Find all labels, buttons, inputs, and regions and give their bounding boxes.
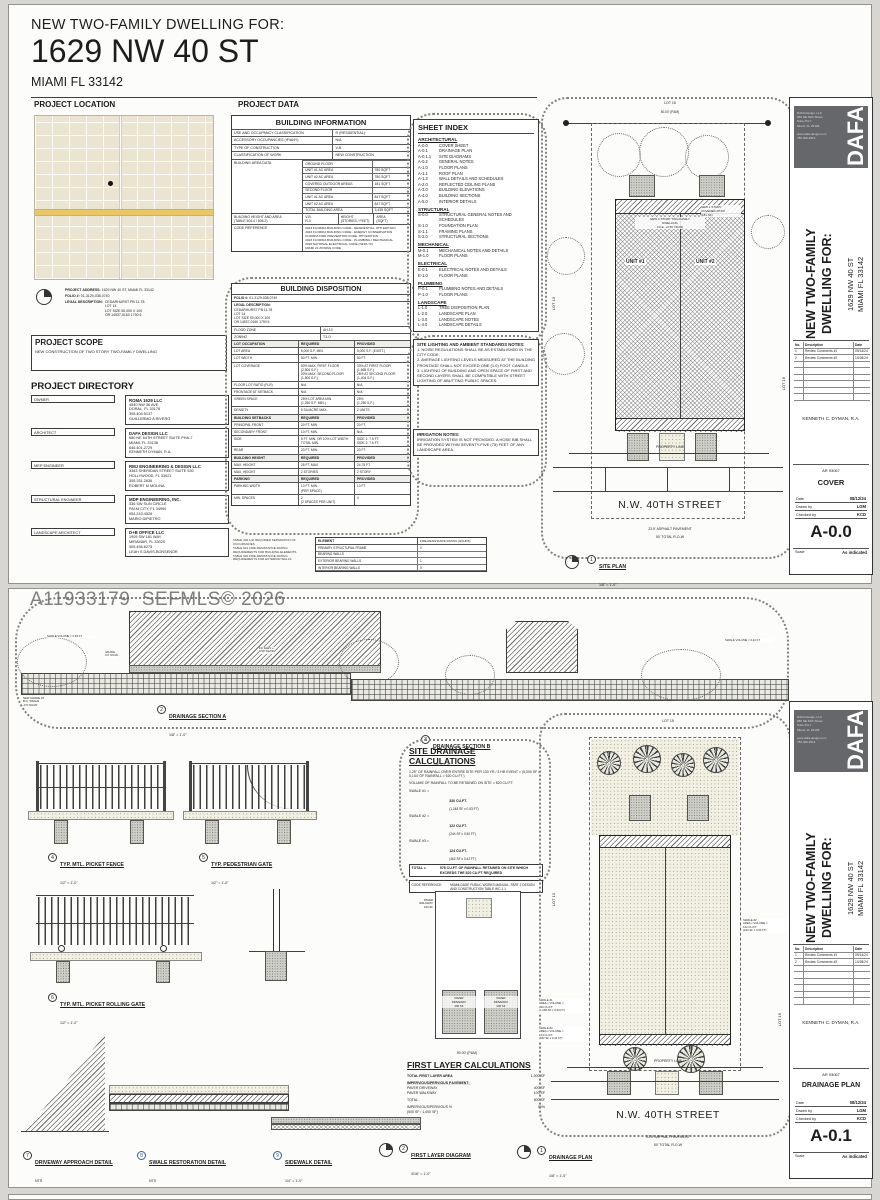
detail-number-icon: 8: [137, 1151, 146, 1160]
unit2-label: UNIT #2: [695, 259, 716, 265]
sheet-name: SITE DIAGRAMS: [439, 154, 534, 159]
address-value: 1629 NW 40 ST, MIAMI FL 33142: [102, 288, 154, 292]
diagram-dimension: 50.00' (P&M): [407, 1051, 527, 1055]
area-name: COVERED OUTDOOR AREAS: [303, 181, 371, 187]
site-plan: LOT 15 50.00' (P&M) UNIT #1 UNIT #2 NEW …: [539, 97, 801, 577]
sheet-name: FRAMING PLANS: [439, 229, 534, 234]
directory-info: DAFA DESIGN LLC 680 NE 64TH STREET SUITE…: [125, 428, 229, 458]
detail-scale: 1/2" = 1'-0": [211, 881, 229, 885]
area-name: SECOND FLOOR: [303, 188, 371, 194]
swale1-callout: SWALE #1 AREA x VOLUME = 330 CU.FT. (1,2…: [539, 999, 587, 1013]
fence-detail-label: 4 TYP. MTL. PICKET FENCE1/2" = 1'-0": [48, 853, 124, 889]
section-callout: NEW GRADE AT B.O. SWALE -0.5' NGVD: [23, 697, 63, 707]
map-road-highway: [35, 209, 213, 216]
sheet-number: S-1.1: [418, 229, 439, 234]
map-road-vertical: [119, 116, 122, 279]
sheet-index: SHEET INDEX ARCHITECTURAL A-0.0COVER SHE…: [413, 119, 539, 332]
area-name: GROUND FLOOR: [303, 161, 371, 167]
table-row: SIDE5 FT. MIN. OR 10% LOT WIDTH TOTAL MI…: [232, 435, 410, 446]
swale3-callout: SWALE #3 AREA x VOLUME = 124 CU.FT. (462…: [539, 1027, 587, 1041]
cell-b: 20 FT. MIN.: [298, 447, 354, 453]
sidewalk-line: [553, 491, 783, 492]
sheet-number: A-2.0: [418, 182, 439, 187]
bi-value: R (RESIDENTIAL): [333, 130, 410, 136]
paver-pad: [687, 795, 709, 821]
fire-element: PRIMARY STRUCTURAL FRAME: [316, 545, 418, 551]
rolling-gate-detail: 6 TYP. MTL. PICKET ROLLING GATE1/2" = 1'…: [36, 889, 226, 1013]
sheet-number: M-1.0: [418, 253, 439, 258]
table-row: CLASSIFICATION OF WORK NEW CONSTRUCTION: [232, 151, 410, 158]
code-label: CODE REFERENCE:: [412, 883, 451, 891]
cell-a: MAX. HEIGHT: [232, 462, 298, 468]
sheet-info-rows: Date08/12/24 Drawn byLGM Checked byKCD: [795, 1099, 867, 1123]
sheet-name: WALL DETAILS AND SCHEDULES: [439, 176, 534, 181]
checked-value: KCD: [857, 1116, 866, 1121]
directory-firm-details: 336 SW SUN CIRCLE PALM CITY, FL 34990 95…: [129, 502, 225, 522]
area-sqft: 780 SQFT: [372, 168, 410, 174]
index-arch-label: ARCHITECTURAL: [418, 137, 534, 142]
total-value: 576 CU.FT. OF RAINFALL RETAINED ON SITE …: [440, 866, 541, 875]
code-value: MIAMI-DADE PUBLIC WORKS MANUAL, PART 2 D…: [450, 883, 540, 891]
north-arrow-icon: [379, 1143, 393, 1157]
lighting-body: 1. NOISE REGULATIONS SHALL BE AS ESTABLI…: [417, 347, 535, 383]
document-canvas: NEW TWO-FAMILY DWELLING FOR: 1629 NW 40 …: [0, 0, 880, 1200]
driveway-edge: [729, 467, 730, 491]
paver-pad: [629, 175, 655, 197]
section-project-location: PROJECT LOCATION: [34, 100, 115, 109]
scale-row: Scale As indicated: [795, 1154, 867, 1159]
sheet-number: M-0.1: [418, 248, 439, 253]
hdr-b: REQUIRED: [298, 341, 354, 347]
property-line-label: PROPERTY LINE: [537, 1059, 799, 1063]
table-row: UNIT #2 AC AREA 847 SQFT: [303, 200, 410, 207]
table-row: MAX. HEIGHT2 STORIES2 STORY: [232, 468, 410, 475]
tree-symbol: [639, 127, 689, 177]
detail-name: DRIVEWAY APPROACH DETAIL: [35, 1160, 113, 1166]
lot-left-label: LOT 13: [551, 297, 556, 310]
fence-detail: 4 TYP. MTL. PICKET FENCE1/2" = 1'-0": [36, 759, 186, 869]
table-row: FRONTAGE AT SETBACKN/AN/A: [232, 388, 410, 395]
sheet-name: STRUCTURAL SECTIONS: [439, 234, 534, 239]
cell-a: FRONTAGE AT SETBACK: [232, 389, 298, 395]
cell-b: 50% MAX. FIRST FLOOR (2,500 S.F.) 30% MA…: [298, 363, 354, 381]
list-item: M-0.1MECHANICAL NOTES AND DETAILS: [418, 248, 534, 253]
sheet-number: A-0.0: [418, 143, 439, 148]
bi-value: V-B: [333, 145, 410, 151]
swale-label: SWALE #1 =: [409, 789, 449, 811]
setbacks-rows: PRINCIPAL FRONT20 FT. MIN.20 FT.SECONDAR…: [232, 421, 410, 454]
swale-calc-rows: SWALE #1 = 330 CU.FT.(1,248 SF x 0.53 FT…: [409, 789, 543, 861]
base-line: [21, 1131, 109, 1132]
disp-legal-label: LEGAL DESCRIPTION:: [234, 303, 271, 307]
cell-c: N/A: [354, 382, 410, 388]
rg-pickets: [38, 897, 190, 945]
driveway-approach-label: 7 DRIVEWAY APPROACH DETAILNTS: [23, 1151, 113, 1187]
detail-name: SWALE RESTORATION DETAIL: [149, 1160, 226, 1166]
index-plu-list: P-0.1PLUMBING NOTES AND DETAILSP-1.0FLOO…: [418, 286, 534, 297]
cell-b: 20 FT. MIN.: [298, 422, 354, 428]
directory-firm-details: 1905 SW 181 WAY MIRAMAR, FL 33029 305.45…: [129, 535, 225, 555]
fire-rows: PRIMARY STRUCTURAL FRAME 0 BEARING WALLS…: [316, 545, 486, 571]
table-row: SWALE #3 = 124 CU.FT.(462 SF x 0.42 FT): [409, 839, 543, 861]
footing: [56, 961, 70, 983]
swale-line: [553, 467, 783, 468]
setbacks-header: BUILDING SETBACKSREQUIREDPROVIDED: [232, 414, 410, 421]
detail-scale: 1/8" = 1'-0": [169, 733, 187, 737]
cell-c: N/A: [354, 389, 410, 395]
north-arrow-icon: [517, 1145, 531, 1159]
directory-firm-details: 680 NE 64TH STREET SUITE PHA-7 MIAMI, FL…: [129, 436, 225, 456]
north-arrow-icon: [36, 289, 52, 305]
sheet-name: MECHANICAL NOTES AND DETAILS: [439, 248, 534, 253]
sheet-name: BUILDING SECTIONS: [439, 193, 534, 198]
fl-label: PAVER DRIVEWAY: [407, 1086, 438, 1090]
lot-occupation-rows: LOT AREA5,000 S.F. MIN.5,000 S.F. (EXIST…: [232, 347, 410, 413]
cell-c: 5,000 S.F. (EXIST.): [354, 348, 410, 354]
list-item: S-1.0FOUNDATION PLAN: [418, 223, 534, 228]
table-row: SWALE #1 = 330 CU.FT.(1,248 SF x 0.53 FT…: [409, 789, 543, 811]
cell-b: 2 (2 SPACES PER UNIT): [298, 495, 354, 505]
rev-date: 10/28/24: [853, 355, 870, 361]
area-rows: GROUND FLOOR UNIT #1 AC AREA 780 SQFT UN…: [303, 160, 410, 213]
section-ground: [351, 679, 789, 701]
approach-wedge: [25, 1035, 105, 1131]
height-label: BUILDING HEIGHT AND AREA (TABLE 504.4 / …: [232, 214, 303, 224]
porch-hatch: [600, 836, 730, 848]
calc-total-row: TOTAL = 576 CU.FT. OF RAINFALL RETAINED …: [409, 864, 543, 878]
drainage-plan: LOT 15 SWALE #2 AREA x VOLUME = 122 CU.F…: [537, 713, 799, 1157]
sheet-title: COVER: [790, 478, 872, 487]
cell-c: 20 FT.: [354, 422, 410, 428]
detail-name: TYP. PEDESTRIAN GATE: [211, 862, 272, 868]
tree-symbol: [641, 649, 721, 701]
table-row: GREEN SPACE25% LOT AREA MIN. (1,250 S.F.…: [232, 395, 410, 406]
legal-label: LEGAL DESCRIPTION:: [65, 300, 103, 318]
building-footprint: [615, 199, 745, 431]
tree-symbol: [671, 753, 695, 777]
area-sqft: 847 SQFT: [372, 194, 410, 200]
list-item: S-2.0STRUCTURAL SECTIONS: [418, 234, 534, 239]
tb-divider: [793, 548, 869, 549]
list-item: L-2.0LANDSCAPE PLAN: [418, 311, 534, 316]
grade-strip: [28, 811, 174, 820]
fire-resistance-table: ELEMENT FIRE-RESISTANCE RATING (HOURS) P…: [315, 537, 487, 572]
street-label: N.W. 40TH STREET: [539, 499, 801, 511]
firm-info: DAFA Design, LLC 680 NE 64th Street Suit…: [797, 715, 837, 744]
swale-volume: 330 CU.FT.: [449, 799, 467, 803]
first-layer-calculations: FIRST LAYER CALCULATIONS TOTAL FIRST LAY…: [407, 1061, 545, 1114]
swale-label: SWALE #2 =: [409, 814, 449, 836]
lot-right-label: LOT 16: [781, 377, 786, 390]
index-plu-label: PLUMBING: [418, 281, 534, 286]
sheet-name: FLOOR PLANS: [439, 165, 534, 170]
rev-no: 2: [794, 355, 803, 361]
bi-label: USE AND OCCUPANCY CLASSIFICATION: [232, 130, 333, 136]
sheet-number: P-1.0: [418, 292, 439, 297]
swale-sub: (244 SF x 0.50 FT): [449, 832, 543, 836]
sheet-next-sliver: [8, 1194, 872, 1200]
fire-notes: TABLE 302.1(1) REQUIRED SEPARATION OF OC…: [233, 539, 309, 562]
drainage-plan-label: 1 DRAINAGE PLAN1/8" = 1'-0": [537, 1146, 592, 1182]
total-label: TOTAL =: [412, 866, 440, 875]
zoning-value: T3-O: [321, 334, 410, 340]
lot-top-label: LOT 15: [539, 101, 801, 105]
cell-a: MIN. SPACES: [232, 495, 298, 505]
cell-b: N/A: [298, 382, 354, 388]
area-sqft: 3,435 SQFT: [372, 208, 410, 214]
firm-logo-box: DAFA Design, LLC 680 NE 64th Street Suit…: [794, 710, 868, 772]
building-note: NEW 2 STORY TWO-FAMILY DWELLING F.F.E. +…: [635, 217, 705, 229]
rev-no-col: No.: [794, 342, 803, 348]
table-row: PAVER WALKWAY100 SF: [407, 1091, 545, 1095]
cell-c: 50 FT.: [354, 355, 410, 361]
dafa-logo: DAFA: [845, 108, 867, 166]
lot-left-label: LOT 13: [551, 893, 556, 906]
cell-b: 9 DU/ACRE MAX.: [298, 407, 354, 413]
table-row: UNIT #1 AC AREA 780 SQFT: [303, 167, 410, 174]
bi-label: TYPE OF CONSTRUCTION: [232, 145, 333, 151]
street-label: N.W. 40TH STREET: [537, 1109, 799, 1121]
fl-total-area-label: TOTAL FIRST LAYER AREA: [407, 1074, 453, 1078]
detail-number-icon: 5: [199, 853, 208, 862]
cell-c: 10 FT.: [354, 483, 410, 493]
list-item: A-4.0BUILDING SECTIONS: [418, 193, 534, 198]
folio-value: 01-3129-038-0740: [81, 294, 110, 298]
area-sqft: 780 SQFT: [372, 174, 410, 180]
section-callout: SWALE VOLUME = 0.53 FT: [47, 635, 95, 638]
fl-pct-label: IMPERVIOUS/PERVIOUS % (500 SF / 1,000 SF…: [407, 1105, 452, 1114]
building-footprint: [599, 835, 731, 1045]
cell-c: 24.75 FT.: [354, 462, 410, 468]
fire-col-rating: FIRE-RESISTANCE RATING (HOURS): [418, 538, 486, 544]
rev-date: 10/28/24: [853, 959, 870, 965]
hdr-c: PROVIDED: [354, 476, 410, 482]
subbase-layer: [271, 1124, 421, 1130]
disp-folio-label: FOLIO #:: [234, 296, 248, 300]
index-mec-label: MECHANICAL: [418, 242, 534, 247]
cell-c: 2 STORY: [354, 469, 410, 475]
sheet-a00-cover: NEW TWO-FAMILY DWELLING FOR: 1629 NW 40 …: [8, 4, 872, 584]
tree-symbol: [703, 747, 729, 773]
irrigation-body: IRRIGATION SYSTEM IS NOT PROVIDED. A HOS…: [417, 437, 535, 453]
sheet-number: A-0.0: [790, 522, 872, 542]
irrigation-notes: IRRIGATION NOTES: IRRIGATION SYSTEM IS N…: [413, 429, 539, 456]
directory-entry: ARCHITECT DAFA DESIGN LLC 680 NE 64TH ST…: [31, 428, 229, 458]
dafa-logo: DAFA: [845, 712, 867, 770]
list-item: M-1.0FLOOR PLANS: [418, 253, 534, 258]
gate-wheel: [160, 945, 167, 952]
cell-b: 25 FT. MAX.: [298, 462, 354, 468]
property-line-label: PROPERTY LINE: [539, 445, 801, 449]
detail-scale: 1/2" = 1'-0": [60, 881, 78, 885]
code-reference-row: CODE REFERENCE 2023 FLORIDA BUILDING COD…: [232, 224, 410, 251]
titleblock-drainage: DAFA Design, LLC 680 NE 64th Street Suit…: [789, 701, 873, 1179]
hdr-c: PROVIDED: [354, 415, 410, 421]
swale-restoration-label: 8 SWALE RESTORATION DETAILNTS: [137, 1151, 226, 1187]
list-item: A-2.0REFLECTED CEILING PLANS: [418, 182, 534, 187]
table-row: TYPE OF CONSTRUCTION V-B: [232, 144, 410, 151]
detail-name: SITE PLAN: [599, 564, 626, 570]
sheet-title: DRAINAGE PLAN: [790, 1082, 872, 1089]
cell-c: N/A: [354, 429, 410, 435]
tree-symbol: [597, 133, 641, 177]
disp-folio: 01-3129-038-0740: [249, 296, 277, 300]
tb-divider: [793, 340, 869, 341]
tree-symbol: [547, 237, 585, 275]
detail-number-icon: 1: [537, 1146, 546, 1155]
table-row: PAVER DRIVEWAY400 SF: [407, 1086, 545, 1090]
hdr-c: PROVIDED: [354, 455, 410, 461]
sheet-number: A-4.0: [418, 193, 439, 198]
titleblock-cover: DAFA Design, LLC 680 NE 64th Street Suit…: [789, 97, 873, 575]
directory-role: ARCHITECT: [31, 428, 115, 436]
walkway-block: [466, 898, 492, 918]
hdr-b: REQUIRED: [298, 476, 354, 482]
sheet-number: L-4.0: [418, 322, 439, 327]
lot-top-label: LOT 15: [537, 719, 799, 723]
porch-hatch: [600, 1034, 730, 1046]
list-item: E-0.1ELECTRICAL NOTES AND DETAILS: [418, 267, 534, 272]
fl-rows: PAVER DRIVEWAY400 SFPAVER WALKWAY100 SF: [407, 1086, 545, 1096]
grade-strip: [30, 952, 202, 961]
cell-b: 10 FT. MIN.: [298, 429, 354, 435]
scale-value: As indicated: [842, 1154, 867, 1159]
tree-symbol: [543, 333, 585, 375]
cell-b: 2 STORIES: [298, 469, 354, 475]
index-ele-list: E-0.1ELECTRICAL NOTES AND DETAILSE-1.0FL…: [418, 267, 534, 278]
area-name: UNIT #2 AC AREA: [303, 174, 371, 180]
footing: [277, 820, 291, 844]
detail-name: FIRST LAYER DIAGRAM: [411, 1153, 471, 1159]
sheet-name: PLUMBING NOTES AND DETAILS: [439, 286, 534, 291]
list-item: A-0.1DRAINAGE PLAN: [418, 148, 534, 153]
fire-rating: 1: [418, 558, 486, 564]
sheet-number: L-2.0: [418, 311, 439, 316]
site-plan-detail-label: 1 SITE PLAN1/8" = 1'-0": [587, 555, 626, 591]
tb-divider: [793, 1068, 869, 1069]
fl-imp-header: I̲M̲P̲E̲R̲V̲I̲O̲U̲S̲/̲P̲E̲R̲V̲I̲O̲U̲S̲ ̲…: [407, 1081, 545, 1085]
area-sqft: [372, 161, 410, 167]
zoning-label: ZONING: [232, 334, 321, 340]
rg-top-rail: [36, 895, 194, 896]
area-name: UNIT #1 AC AREA: [303, 194, 371, 200]
drawn-value: LGM: [857, 504, 866, 509]
sheet-name: COVER SHEET: [439, 143, 534, 148]
parking-header: PARKINGREQUIREDPROVIDED: [232, 475, 410, 482]
section-callout: F.F. ELEV + 0.50' NGVD: [259, 647, 274, 654]
directory-info: ROMA 1629 LLC 4540 NW 36 AVE DORAL, FL 3…: [125, 395, 229, 425]
rolling-gate-label: 6 TYP. MTL. PICKET ROLLING GATE1/2" = 1'…: [48, 993, 145, 1029]
fire-rating: 0: [418, 545, 486, 551]
project-scope-box: PROJECT SCOPE NEW CONSTRUCTION OF TWO ST…: [31, 335, 227, 371]
map-site-marker: [108, 181, 113, 186]
list-item: L-3.0LANDSCAPE NOTES: [418, 317, 534, 322]
sheet-number: E-0.1: [418, 267, 439, 272]
table-row: BEARING WALLS: [316, 552, 486, 559]
sheet-index-title: SHEET INDEX: [418, 123, 534, 134]
legal-value: CEDARHURST PB 11-78 LOT 14 LOT SIZE 50.0…: [105, 300, 145, 318]
sheet-number: E-1.0: [418, 273, 439, 278]
rev-date: 09/14/24: [853, 953, 870, 959]
cell-a: PRINCIPAL FRONT: [232, 422, 298, 428]
detail-scale: NTS: [35, 1179, 42, 1183]
pavement-note: 23.5' ASPHALT PAVEMENT: [537, 1135, 799, 1139]
sheet-number: P-0.1: [418, 286, 439, 291]
list-item: L-1.0TREE DISPOSITION PLAN: [418, 305, 534, 310]
drawn-label: Drawn by: [796, 505, 812, 509]
sheet-name: GENERAL NOTES: [439, 159, 534, 164]
table-row: MAX. HEIGHT25 FT. MAX.24.75 FT.: [232, 461, 410, 468]
unit1-label: UNIT #1: [625, 259, 646, 265]
rev-no-col: No.: [794, 946, 803, 952]
cell-a: GREEN SPACE: [232, 396, 298, 406]
directory-role: OWNER: [31, 395, 115, 403]
cell-c: 25% (1,250 S.F.): [354, 396, 410, 406]
gate-detail: 5 TYP. PEDESTRIAN GATE1/2" = 1'-0": [189, 759, 329, 869]
swale-restoration-detail: [109, 1085, 291, 1125]
post-section: [273, 889, 280, 951]
directory-info: D+B OFFICE LLC 1905 SW 181 WAY MIRAMAR, …: [125, 528, 229, 558]
table-row: FLOOR LOT RATIO (FLR)N/AN/A: [232, 381, 410, 388]
sheet-name: INTERIOR DETAILS: [439, 199, 534, 204]
sheet-name: REFLECTED CEILING PLANS: [439, 182, 534, 187]
folio-label: FOLIO #:: [65, 294, 80, 298]
lot-occupation-header: LOT OCCUPATIONREQUIREDPROVIDED: [232, 340, 410, 347]
footing: [265, 951, 287, 981]
drainage-calc-title: SITE DRAINAGE CALCULATIONS: [409, 747, 543, 767]
checked-value: KCD: [857, 512, 866, 517]
index-ele-label: ELECTRICAL: [418, 261, 534, 266]
detail-number-icon: 7: [23, 1151, 32, 1160]
rev-date-col: Date: [853, 946, 870, 952]
table-row: DENSITY9 DU/ACRE MAX.2 UNITS: [232, 406, 410, 413]
rev-date: 09/14/24: [853, 349, 870, 355]
detail-number-icon: 6: [48, 993, 57, 1002]
scale-label: Scale: [795, 550, 805, 555]
detail-number-icon: 4: [48, 853, 57, 862]
parking-rows: PARKING WIDTH10 FT. MIN. (PER SPACE)10 F…: [232, 482, 410, 504]
table-row: PARKING WIDTH10 FT. MIN. (PER SPACE)10 F…: [232, 482, 410, 493]
scale-row: Scale As indicated: [795, 550, 867, 555]
rev-date-col: Date: [853, 342, 870, 348]
table-row: REAR20 FT. MIN.20 FT.: [232, 446, 410, 453]
list-item: P-1.0FLOOR PLANS: [418, 292, 534, 297]
fire-rating: [418, 552, 486, 558]
table-row: GROUND FLOOR: [303, 160, 410, 167]
building-area-data: BUILDING AREA DATA GROUND FLOOR UNIT #1 …: [232, 159, 410, 213]
tree-symbol: [751, 215, 785, 249]
project-scope-title: PROJECT SCOPE: [35, 338, 223, 347]
bi-label: CLASSIFICATION OF WORK: [232, 152, 333, 158]
paver-driveway: [607, 1071, 631, 1095]
sheet-number: L-1.0: [418, 305, 439, 310]
rev-no: 2: [794, 959, 803, 965]
table-row: EXTERIOR BEARING WALLS 1: [316, 558, 486, 565]
cell-b: N/A: [298, 389, 354, 395]
bi-value: N/A: [333, 137, 410, 143]
flood-zone-label: FLOOD ZONE: [232, 327, 321, 333]
cell-c: 2 UNITS: [354, 407, 410, 413]
detail-scale: 3/16" = 1'-0": [411, 1172, 431, 1176]
area-name: TOTAL BUILDING AREA: [303, 208, 371, 214]
detail-scale: 1/4" = 1'-0": [285, 1179, 303, 1183]
index-lan-label: LANDSCAPE: [418, 300, 534, 305]
scale-label: Scale: [795, 1154, 805, 1159]
north-arrow-icon: [565, 555, 579, 569]
section-building-mass: [506, 621, 578, 673]
sheet-name: TREE DISPOSITION PLAN: [439, 305, 534, 310]
table-row: ACCESSORY OCCUPANCIES (IF/ANY) N/A: [232, 136, 410, 143]
